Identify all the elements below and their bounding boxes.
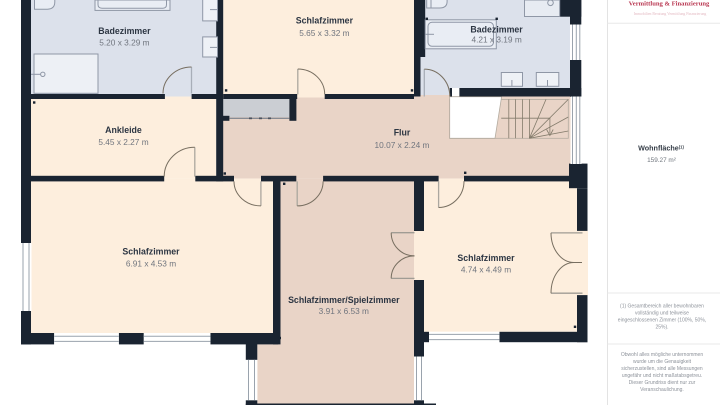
- svg-text:Badezimmer: Badezimmer: [98, 26, 151, 36]
- svg-text:4.74 x 4.49 m: 4.74 x 4.49 m: [461, 264, 511, 274]
- svg-text:Ankleide: Ankleide: [105, 125, 142, 135]
- svg-text:4.21 x 3.19 m: 4.21 x 3.19 m: [471, 35, 521, 45]
- svg-text:6.91 x 4.53 m: 6.91 x 4.53 m: [126, 259, 176, 269]
- svg-text:Schlafzimmer: Schlafzimmer: [296, 15, 354, 25]
- svg-text:Flur: Flur: [394, 127, 411, 137]
- svg-text:5.20 x 3.29 m: 5.20 x 3.29 m: [99, 38, 149, 48]
- svg-text:Schlafzimmer: Schlafzimmer: [122, 247, 180, 257]
- svg-text:Obwohl alles mögliche unternom: Obwohl alles mögliche unternommen: [621, 352, 703, 358]
- svg-text:3.91 x 6.53 m: 3.91 x 6.53 m: [319, 306, 369, 316]
- svg-text:eingeschlossenen Zimmer (100%,: eingeschlossenen Zimmer (100%, 50%,: [618, 318, 706, 324]
- svg-text:(1) Gesamtbereich aller bewohn: (1) Gesamtbereich aller bewohnbaren: [620, 304, 704, 310]
- svg-text:sicherzustellen, sind alle Mes: sicherzustellen, sind alle Messungen: [621, 366, 703, 372]
- svg-text:Veranschaulichung.: Veranschaulichung.: [640, 387, 684, 393]
- svg-text:5.65 x 3.32 m: 5.65 x 3.32 m: [299, 28, 349, 38]
- svg-text:25%).: 25%).: [655, 325, 668, 331]
- svg-text:Vermittlung & Finanzierung: Vermittlung & Finanzierung: [629, 0, 710, 7]
- svg-text:10.07 x 2.24 m: 10.07 x 2.24 m: [375, 140, 430, 150]
- svg-text:Wohnfläche(1): Wohnfläche(1): [638, 144, 684, 153]
- svg-text:Schlafzimmer/Spielzimmer: Schlafzimmer/Spielzimmer: [288, 295, 400, 305]
- svg-text:Schlafzimmer: Schlafzimmer: [457, 253, 515, 263]
- svg-text:Immobilien Beratung Vermittlun: Immobilien Beratung Vermittlung Finanzie…: [634, 12, 707, 16]
- svg-text:159.27 m²: 159.27 m²: [647, 157, 676, 164]
- svg-text:Badezimmer: Badezimmer: [470, 25, 523, 35]
- svg-text:ungefähr und nicht maßstabsget: ungefähr und nicht maßstabsgetreu.: [622, 373, 702, 379]
- svg-text:Dieser Grundriss dient nur zur: Dieser Grundriss dient nur zur: [629, 380, 696, 386]
- svg-text:vollständig und teilweise: vollständig und teilweise: [635, 311, 689, 317]
- svg-text:wurde um die Genauigkeit: wurde um die Genauigkeit: [633, 359, 692, 365]
- svg-text:5.45 x 2.27 m: 5.45 x 2.27 m: [98, 137, 148, 147]
